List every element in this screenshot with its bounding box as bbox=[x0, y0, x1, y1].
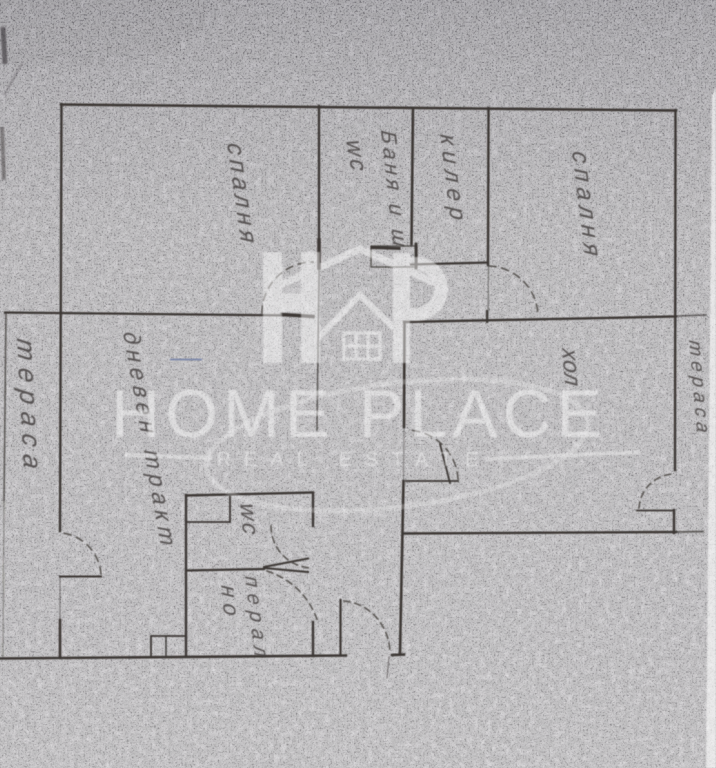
svg-text:wc: wc bbox=[235, 503, 265, 539]
svg-text:но: но bbox=[216, 585, 245, 623]
svg-text:REAL ESTATE: REAL ESTATE bbox=[217, 449, 492, 471]
